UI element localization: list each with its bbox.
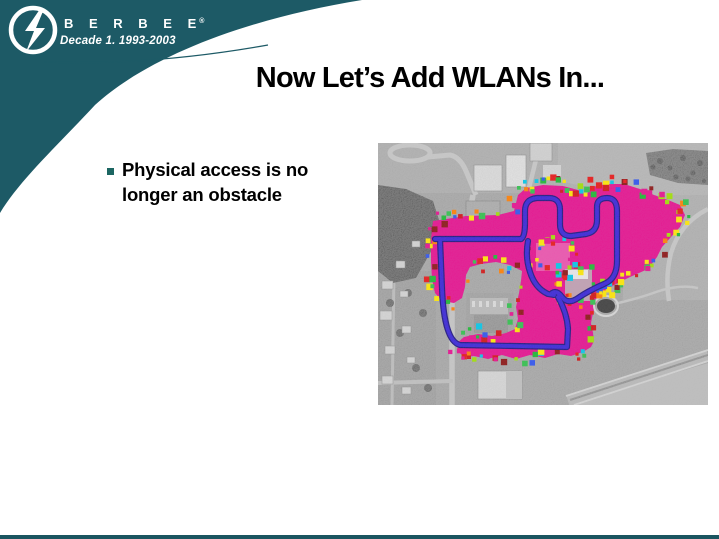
lightning-bolt-icon: [25, 9, 45, 52]
slide-title: Now Let’s Add WLANs In...: [228, 62, 632, 95]
bullet-text: Physical access is no longer an obstacle: [122, 157, 308, 207]
brand-letters: B E R B E E: [64, 16, 202, 31]
logo-underline-swoosh: [44, 45, 268, 63]
brand-name: B E R B E E®: [64, 16, 204, 31]
bottom-edge-bar: [0, 535, 719, 539]
presentation-slide: B E R B E E® Decade 1. 1993-2003 Now Let…: [0, 0, 719, 539]
bullet-line-2: longer an obstacle: [122, 182, 308, 207]
aerial-photo-svg: [378, 143, 708, 405]
photo-grain-overlay: [378, 143, 708, 405]
wlan-coverage-map-image: [378, 143, 708, 405]
brand-tagline: Decade 1. 1993-2003: [60, 35, 176, 47]
logo-emblem: [11, 8, 55, 52]
registered-mark: ®: [199, 18, 204, 25]
bullet-line-1: Physical access is no: [122, 157, 308, 182]
bullet-square-icon: [107, 168, 114, 175]
